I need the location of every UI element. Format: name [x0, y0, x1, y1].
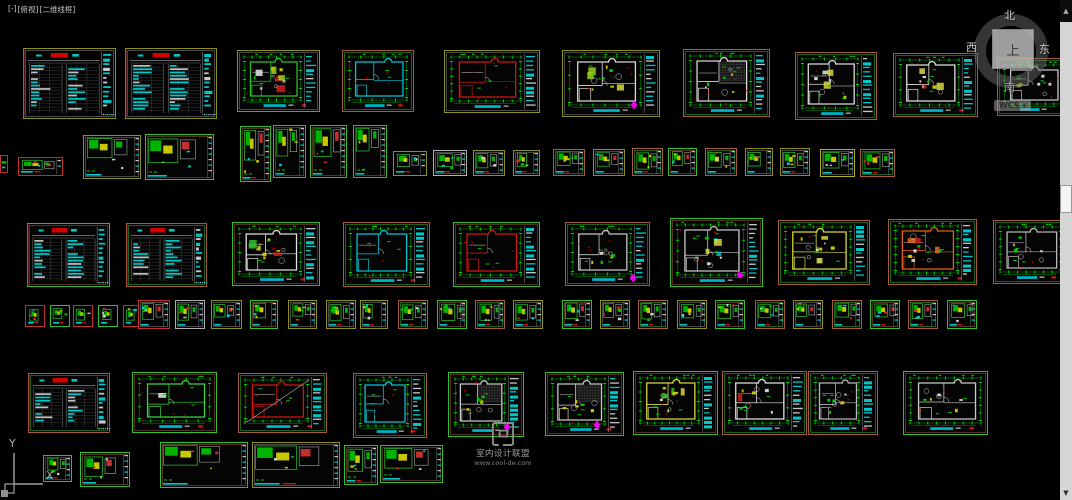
sheet-60[interactable]: [677, 300, 707, 329]
sheet-13[interactable]: [145, 134, 214, 180]
wcs-dropdown-icon: ▾: [1023, 102, 1027, 110]
wcs-label: WCS: [999, 101, 1020, 110]
sheet-25[interactable]: [668, 148, 697, 176]
viewcube-top-face[interactable]: 上: [992, 29, 1034, 69]
sheet-12[interactable]: [83, 135, 141, 179]
sheet-50[interactable]: [288, 300, 317, 329]
sheet-52[interactable]: [360, 300, 388, 329]
viewcube-south-label[interactable]: 南: [1004, 79, 1015, 95]
sheet-11[interactable]: [18, 157, 63, 176]
sheet-69[interactable]: [132, 372, 217, 433]
sheet-77[interactable]: [903, 371, 988, 435]
scroll-up-button[interactable]: ▲: [1060, 0, 1072, 22]
drawing-area[interactable]: [-] [俯视] [二维线框] 北 西 东 南 上 WCS ▾ 室内设计联盟 w…: [0, 0, 1072, 500]
sheet-6[interactable]: [683, 49, 770, 117]
sheet-42[interactable]: [50, 305, 70, 327]
sheet-54[interactable]: [437, 300, 467, 329]
sheet-80[interactable]: [160, 442, 248, 488]
sheet-68[interactable]: [28, 373, 110, 433]
sheet-67[interactable]: [947, 300, 977, 329]
sheet-39[interactable]: [888, 219, 977, 285]
watermark-logo-icon: [492, 422, 514, 446]
ucs-x-label: X: [46, 469, 54, 482]
ucs-icon: Y X: [0, 432, 72, 500]
sheet-56[interactable]: [513, 300, 543, 329]
watermark: 室内设计联盟 www.cool-de.com: [465, 422, 541, 468]
sheet-70[interactable]: [238, 373, 327, 433]
scrollbar-thumb[interactable]: [1060, 185, 1072, 213]
sheet-31[interactable]: [27, 223, 110, 287]
sheet-44[interactable]: [98, 305, 118, 327]
sheet-15[interactable]: [273, 125, 306, 178]
sheet-63[interactable]: [793, 300, 823, 329]
sheet-1[interactable]: [125, 48, 217, 119]
sheet-71[interactable]: [353, 373, 427, 438]
viewcube-east-label[interactable]: 东: [1039, 41, 1050, 57]
sheet-7[interactable]: [795, 52, 877, 120]
sheet-22[interactable]: [553, 149, 585, 176]
sheet-37[interactable]: [670, 218, 763, 287]
sheet-81[interactable]: [252, 442, 340, 488]
sheet-20[interactable]: [473, 150, 505, 176]
sheet-26[interactable]: [705, 148, 737, 176]
viewport-controls: [-] [俯视] [二维线框]: [8, 4, 75, 15]
sheet-49[interactable]: [250, 300, 278, 329]
sheet-53[interactable]: [398, 300, 428, 329]
sheet-18[interactable]: [393, 151, 427, 176]
sheet-40[interactable]: [993, 220, 1068, 284]
sheet-21[interactable]: [513, 150, 540, 176]
sheet-46[interactable]: [138, 300, 170, 329]
sheet-51[interactable]: [326, 300, 356, 329]
view-name-button[interactable]: [俯视]: [18, 4, 39, 15]
sheet-74[interactable]: [633, 371, 718, 435]
vertical-scrollbar[interactable]: ▲ ▼: [1060, 0, 1072, 500]
sheet-57[interactable]: [562, 300, 592, 329]
sheet-43[interactable]: [73, 305, 93, 327]
viewcube-north-label[interactable]: 北: [1004, 7, 1015, 23]
sheet-62[interactable]: [755, 300, 785, 329]
sheet-59[interactable]: [638, 300, 668, 329]
sheet-0[interactable]: [23, 48, 116, 119]
viewcube-west-label[interactable]: 西: [966, 39, 977, 55]
viewcube[interactable]: 北 西 东 南 上: [960, 4, 1064, 104]
sheet-66[interactable]: [908, 300, 938, 329]
visual-style-button[interactable]: [二维线框]: [39, 4, 75, 15]
sheet-47[interactable]: [175, 300, 205, 329]
sheet-30[interactable]: [860, 149, 895, 177]
sheet-83[interactable]: [380, 445, 443, 483]
sheet-24[interactable]: [632, 148, 663, 176]
scroll-down-icon: ▼: [1063, 489, 1068, 497]
sheet-75[interactable]: [722, 371, 807, 435]
sheet-45[interactable]: [123, 305, 140, 327]
sheet-65[interactable]: [870, 300, 900, 329]
sheet-38[interactable]: [778, 220, 870, 285]
sheet-27[interactable]: [745, 148, 773, 176]
sheet-2[interactable]: [237, 50, 320, 112]
sheet-14[interactable]: [240, 126, 271, 182]
sheet-3[interactable]: [342, 50, 414, 112]
sheet-41[interactable]: [25, 305, 45, 327]
sheet-5[interactable]: [562, 50, 660, 117]
sheet-33[interactable]: [232, 222, 320, 286]
sheet-79[interactable]: [80, 452, 130, 487]
sheet-23[interactable]: [593, 149, 625, 176]
sheet-35[interactable]: [453, 222, 540, 287]
sheet-29[interactable]: [820, 149, 855, 177]
scroll-up-icon: ▲: [1063, 7, 1068, 15]
sheet-58[interactable]: [600, 300, 630, 329]
sheet-16[interactable]: [310, 125, 347, 178]
sheet-10[interactable]: [0, 155, 8, 173]
sheet-82[interactable]: [344, 445, 378, 485]
scroll-down-button[interactable]: ▼: [1060, 486, 1072, 499]
sheet-19[interactable]: [433, 150, 467, 176]
sheet-32[interactable]: [126, 223, 207, 287]
wcs-menu[interactable]: WCS ▾: [994, 100, 1031, 111]
viewport-menu-button[interactable]: [-]: [8, 4, 17, 15]
sheet-17[interactable]: [353, 125, 387, 178]
sheet-76[interactable]: [808, 371, 878, 435]
sheet-34[interactable]: [343, 222, 430, 287]
sheet-36[interactable]: [565, 222, 650, 286]
ucs-y-label: Y: [9, 437, 16, 450]
sheet-4[interactable]: [444, 50, 540, 113]
sheet-64[interactable]: [832, 300, 862, 329]
sheet-55[interactable]: [475, 300, 505, 329]
sheet-61[interactable]: [715, 300, 745, 329]
sheet-73[interactable]: [545, 372, 624, 436]
watermark-url: www.cool-de.com: [465, 460, 541, 467]
sheet-28[interactable]: [780, 148, 810, 176]
viewcube-top-label: 上: [1006, 40, 1019, 59]
sheet-48[interactable]: [211, 300, 242, 329]
